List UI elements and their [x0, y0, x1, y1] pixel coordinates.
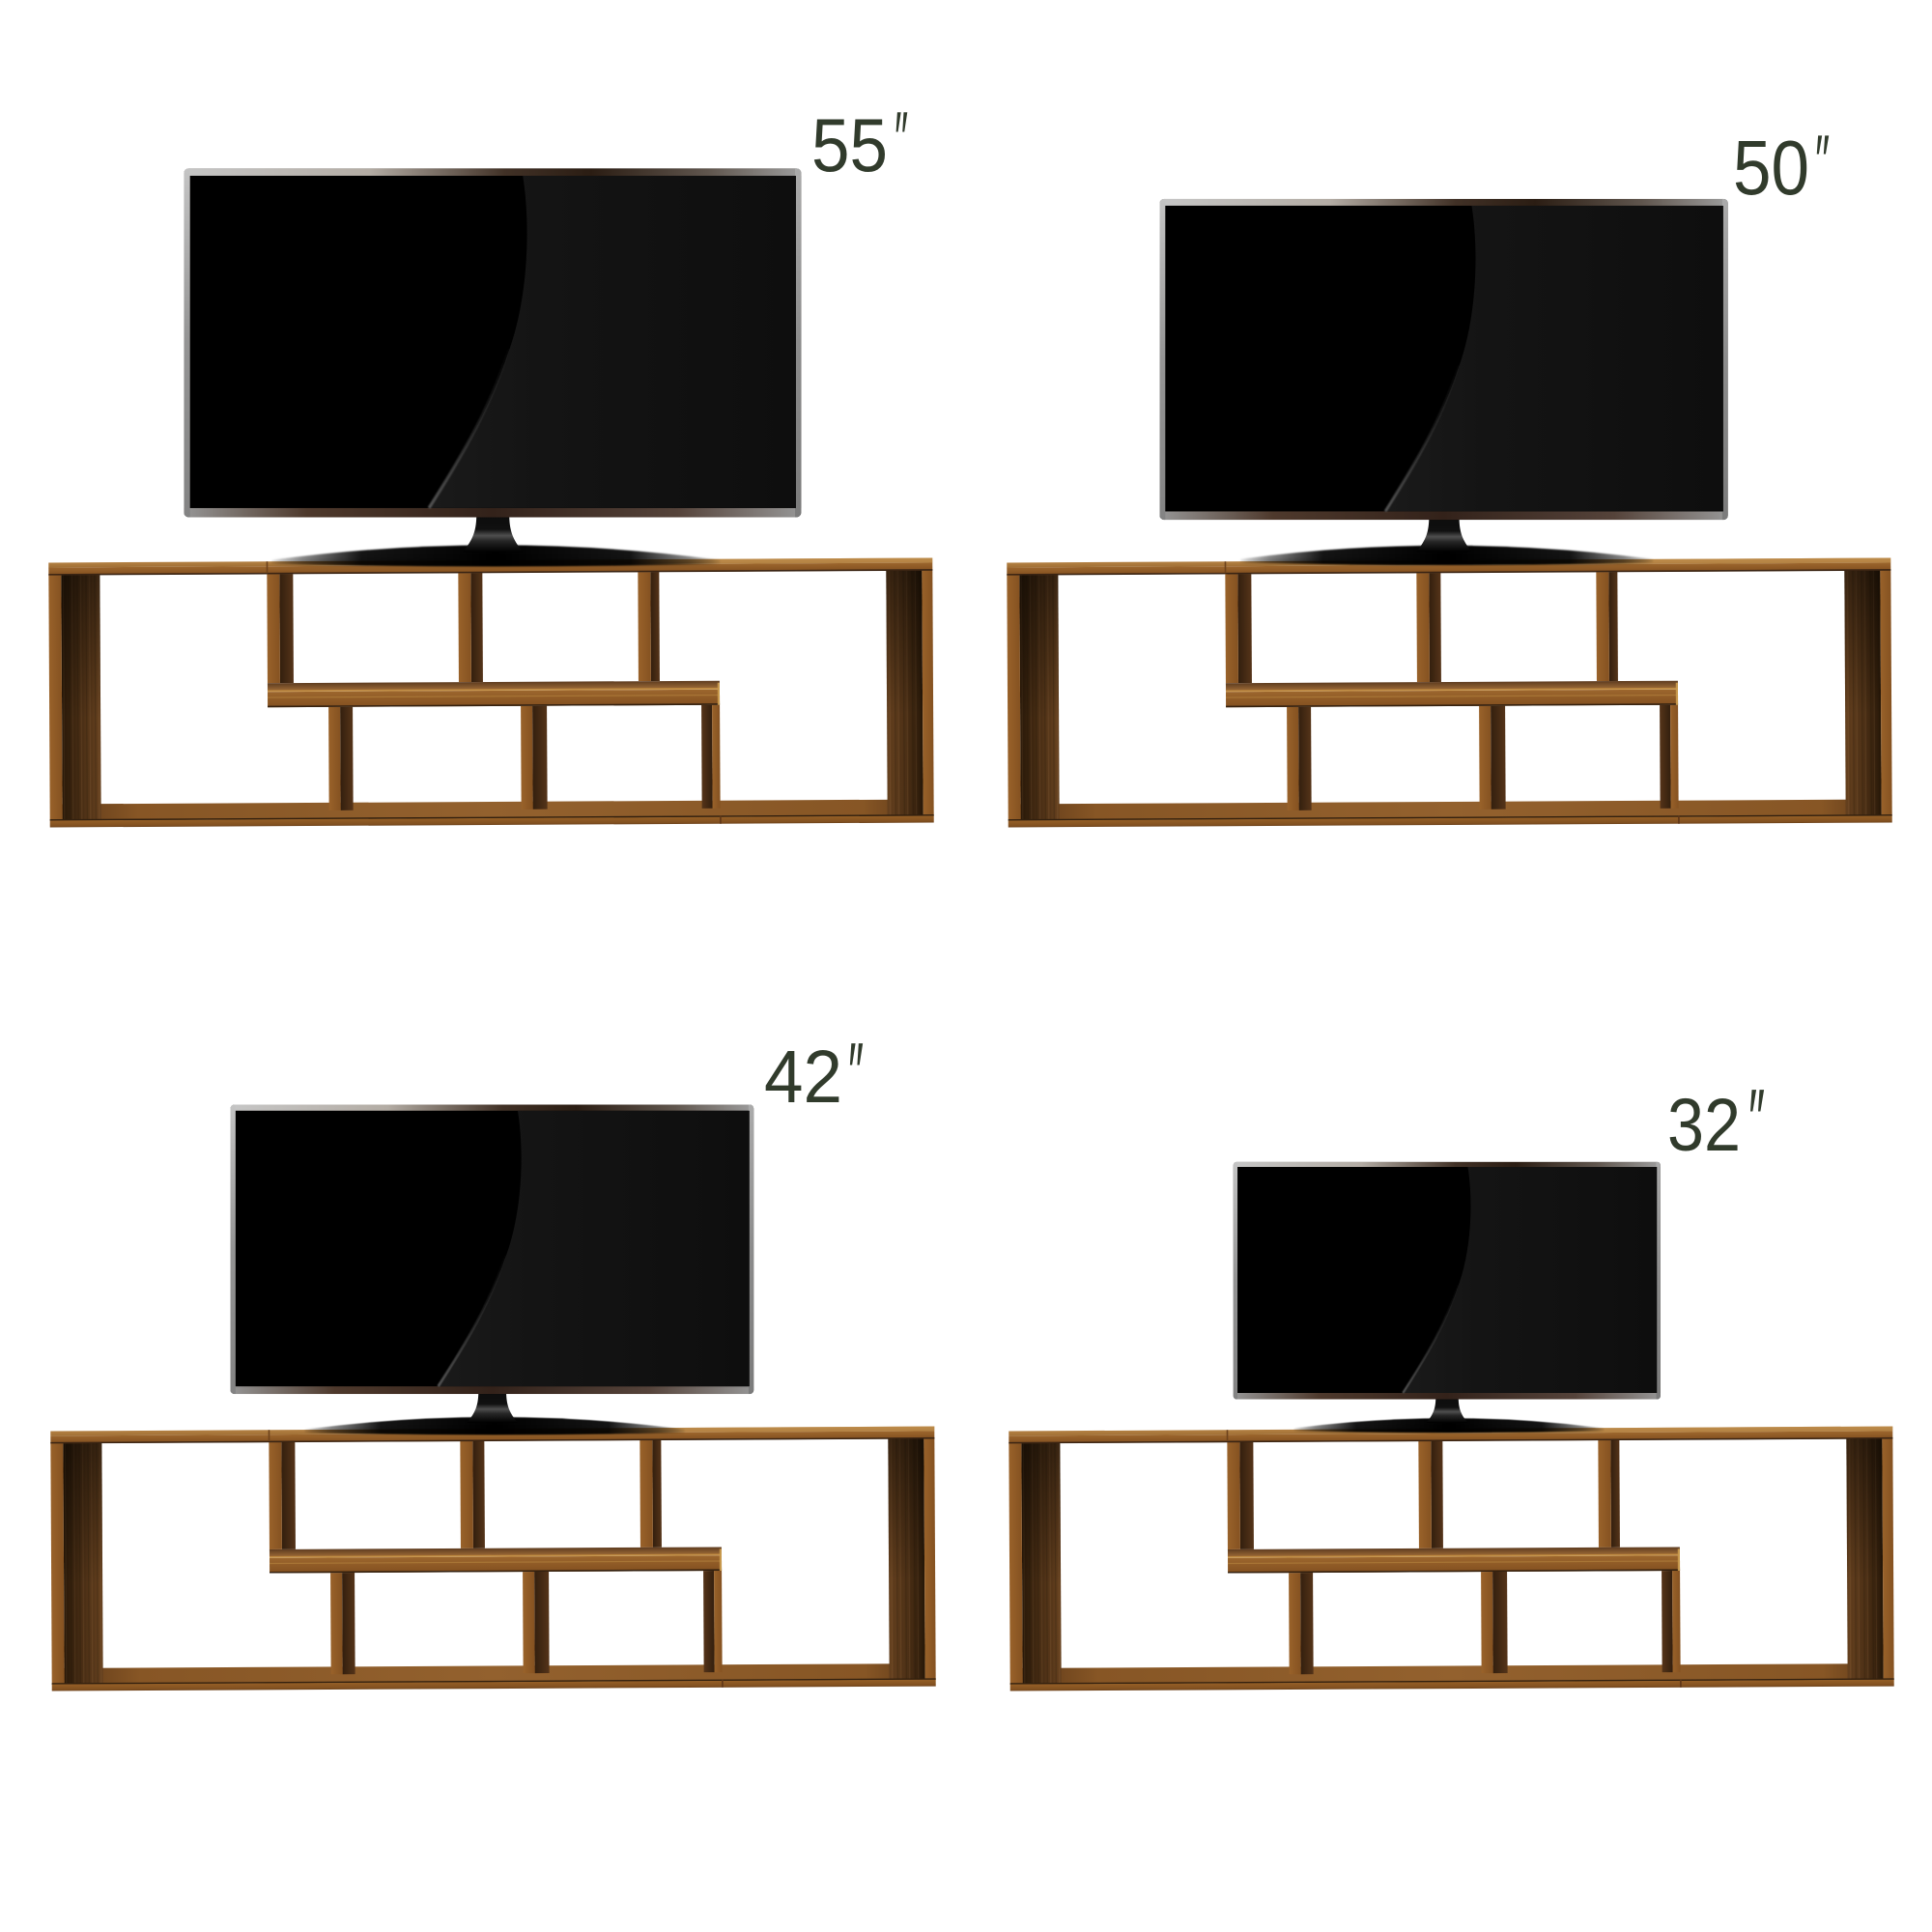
- svg-text:″: ″: [895, 96, 908, 182]
- svg-text:″: ″: [1748, 1071, 1765, 1167]
- svg-text:″: ″: [1815, 120, 1830, 201]
- svg-text:50: 50: [1733, 125, 1809, 211]
- svg-text:55: 55: [811, 102, 888, 187]
- svg-text:32: 32: [1667, 1084, 1741, 1167]
- svg-text:42: 42: [764, 1036, 842, 1119]
- svg-text:″: ″: [848, 1025, 864, 1121]
